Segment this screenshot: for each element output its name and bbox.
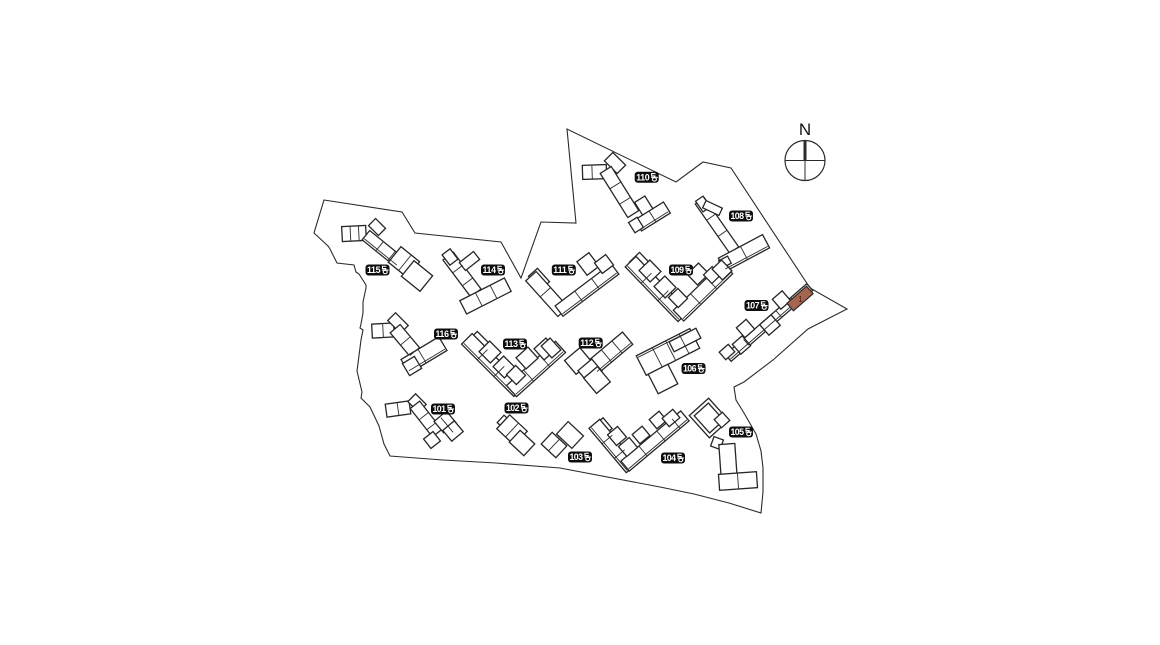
- svg-text:105: 105: [731, 427, 745, 437]
- svg-text:110: 110: [636, 173, 650, 183]
- svg-text:106: 106: [683, 364, 697, 374]
- svg-text:112: 112: [580, 338, 594, 348]
- svg-text:107: 107: [746, 301, 760, 311]
- svg-text:115: 115: [367, 265, 381, 275]
- svg-text:N: N: [799, 120, 811, 139]
- svg-text:104: 104: [663, 453, 677, 463]
- svg-text:116: 116: [436, 329, 450, 339]
- svg-text:108: 108: [731, 211, 745, 221]
- svg-text:109: 109: [671, 265, 685, 275]
- svg-text:102: 102: [506, 403, 520, 413]
- svg-text:113: 113: [505, 339, 519, 349]
- svg-text:114: 114: [483, 265, 497, 275]
- svg-text:101: 101: [433, 404, 447, 414]
- svg-text:103: 103: [570, 452, 584, 462]
- svg-text:1: 1: [798, 295, 803, 304]
- svg-text:111: 111: [553, 265, 567, 275]
